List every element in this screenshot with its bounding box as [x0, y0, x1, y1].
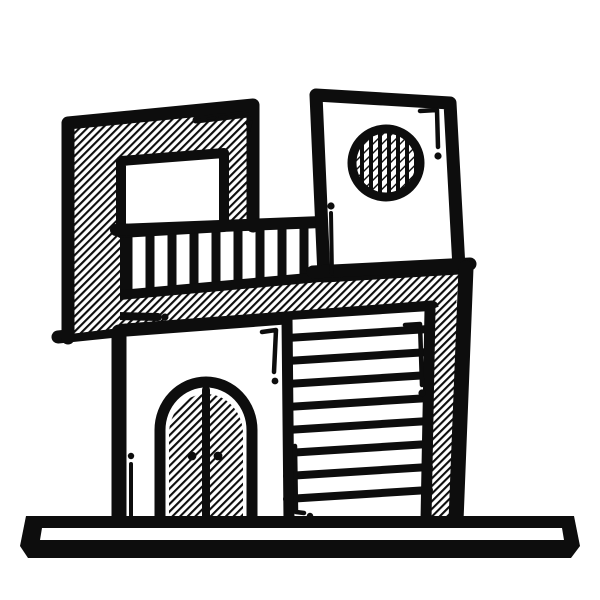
garage-left-frame: [287, 318, 289, 520]
round-vent: [352, 129, 420, 197]
ground-inner-gap: [40, 528, 564, 540]
wall-bracket-dot: [272, 378, 279, 385]
front-door: [160, 382, 252, 521]
tower-left-line: [331, 213, 332, 274]
house-doodle-illustration: [0, 0, 600, 600]
tower-bracket-dot: [434, 152, 441, 159]
tower-bottom-edge: [313, 264, 470, 272]
garage-door: [287, 310, 430, 520]
door-handle-right: [214, 452, 223, 461]
wall-bracket-mark: [262, 330, 276, 372]
tower: [313, 95, 470, 276]
slab-accent-dot: [162, 314, 169, 321]
garage-bracket-dot: [418, 389, 425, 396]
wall-accent-dot-left: [128, 453, 134, 459]
garage-right-frame: [426, 310, 430, 520]
right-wall: [456, 268, 466, 521]
ground-platform: [20, 516, 580, 558]
tower-left-dot: [327, 202, 334, 209]
balcony-top-rail: [116, 222, 322, 230]
doodle-canvas: [0, 0, 600, 600]
door-handle-left: [188, 452, 197, 461]
